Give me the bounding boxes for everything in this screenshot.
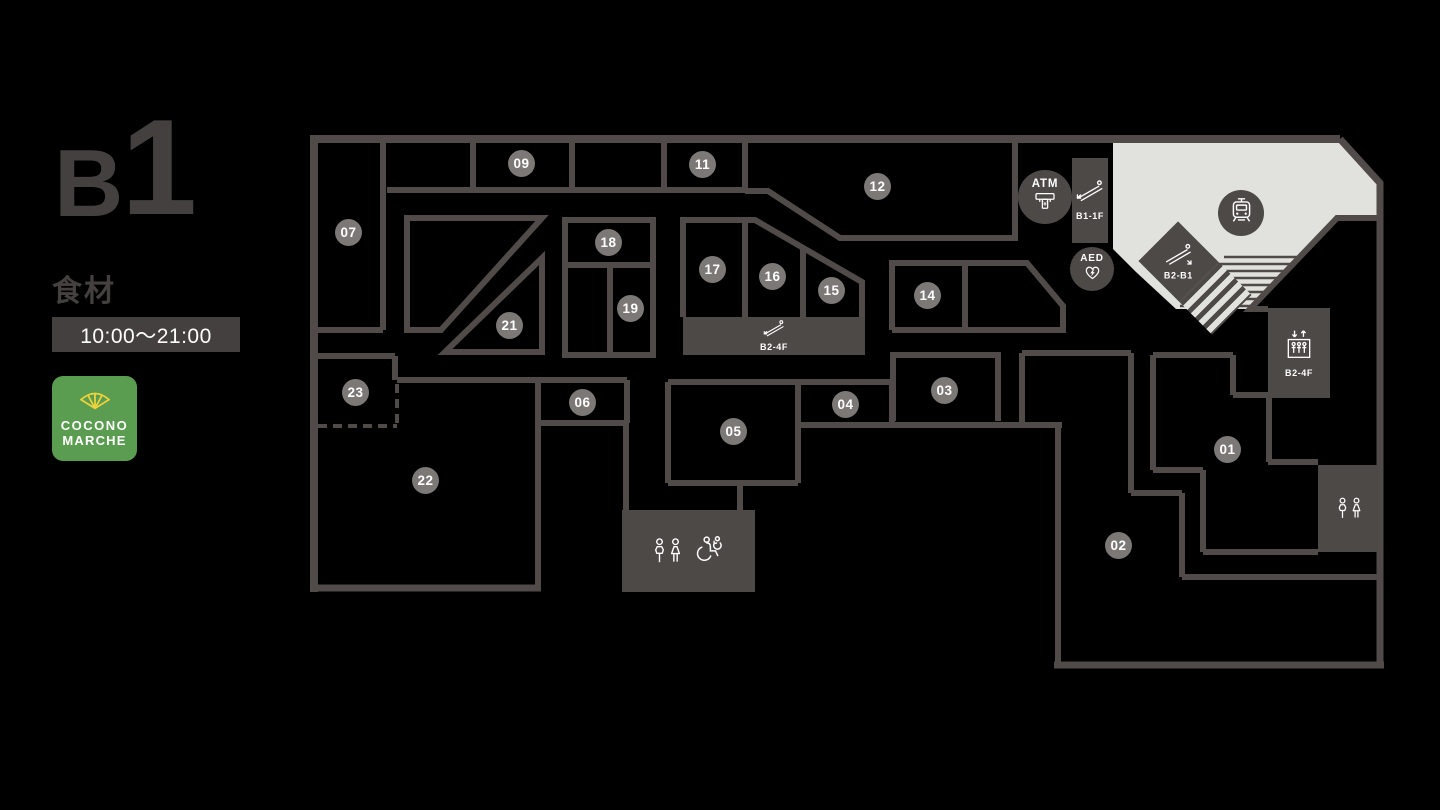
shop-marker-14[interactable]: 14	[914, 282, 941, 309]
shop-marker-21[interactable]: 21	[496, 312, 523, 339]
atm-label: ATM	[1032, 178, 1058, 190]
atm-marker: ATM ¥	[1018, 170, 1072, 224]
shop-marker-03[interactable]: 03	[931, 377, 958, 404]
shop-marker-09[interactable]: 09	[508, 150, 535, 177]
shop-marker-18[interactable]: 18	[595, 229, 622, 256]
escalator-icon	[760, 320, 788, 342]
restroom-east-block	[1318, 465, 1380, 552]
shop-marker-19[interactable]: 19	[617, 295, 644, 322]
shop-marker-11[interactable]: 11	[689, 151, 716, 178]
elevator-icon	[1283, 328, 1315, 365]
elevator-b2-4f-block: B2-4F	[1268, 308, 1330, 398]
aed-marker: AED	[1070, 247, 1114, 291]
floor-map-page: B1 食材 10:00〜21:00 COCONO MARCHE	[0, 0, 1440, 810]
shop-marker-16[interactable]: 16	[759, 263, 786, 290]
atm-icon: ¥	[1033, 191, 1057, 217]
elevator-b2-4f-label: B2-4F	[1285, 368, 1313, 378]
aed-heart-icon	[1083, 264, 1102, 286]
floorplan-walls	[0, 0, 1440, 810]
escalator-b2-4f-label: B2-4F	[760, 342, 788, 352]
aed-label: AED	[1080, 253, 1104, 264]
escalator-b2-b1-label: B2-B1	[1164, 270, 1193, 280]
station-marker	[1218, 190, 1264, 236]
mens-womens-restroom-icon	[1337, 497, 1362, 520]
shop-marker-02[interactable]: 02	[1105, 532, 1132, 559]
shop-marker-12[interactable]: 12	[864, 173, 891, 200]
svg-text:¥: ¥	[1043, 201, 1047, 208]
shop-marker-22[interactable]: 22	[412, 467, 439, 494]
shop-marker-15[interactable]: 15	[818, 277, 845, 304]
shop-marker-04[interactable]: 04	[832, 391, 859, 418]
shop-marker-06[interactable]: 06	[569, 389, 596, 416]
escalator-icon	[1163, 243, 1195, 270]
mens-womens-restroom-icon	[653, 538, 682, 564]
shop-marker-01[interactable]: 01	[1214, 436, 1241, 463]
escalator-b1-1f-block: B1-1F	[1072, 158, 1108, 243]
shop-marker-05[interactable]: 05	[720, 418, 747, 445]
shop-marker-07[interactable]: 07	[335, 219, 362, 246]
restroom-center-block	[622, 510, 755, 592]
escalator-b1-1f-label: B1-1F	[1076, 211, 1104, 221]
shop-marker-23[interactable]: 23	[342, 379, 369, 406]
accessible-restroom-icon	[694, 535, 724, 568]
train-icon	[1228, 196, 1255, 230]
escalator-b2-4f-block: B2-4F	[683, 317, 865, 355]
shop-marker-17[interactable]: 17	[699, 256, 726, 283]
escalator-icon	[1074, 180, 1106, 207]
